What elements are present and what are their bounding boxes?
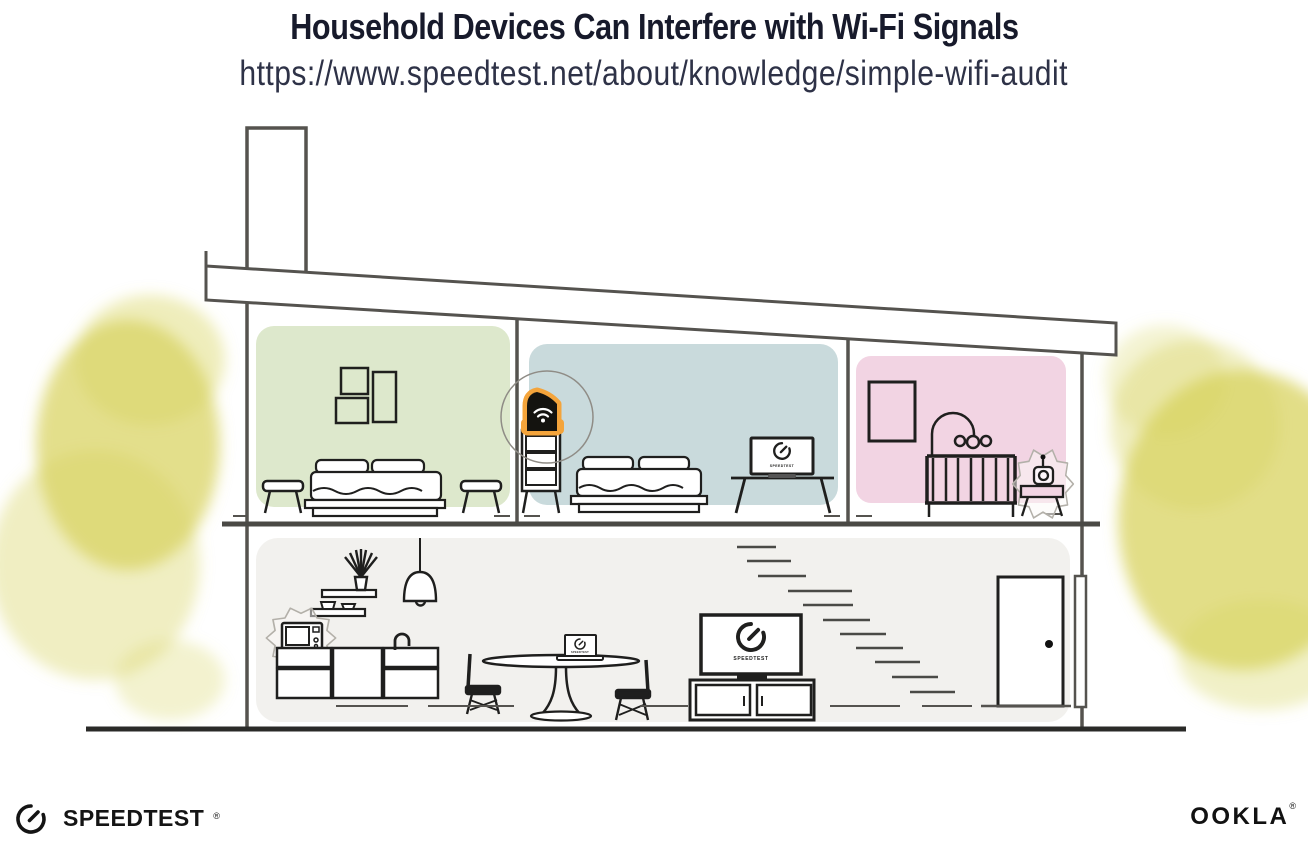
tv-area: SPEEDTEST	[690, 615, 814, 720]
doorknob	[1045, 640, 1053, 648]
tv-label: SPEEDTEST	[733, 656, 768, 662]
dining-laptop-label: SPEEDTEST	[571, 650, 589, 654]
bed	[571, 457, 707, 512]
ookla-wordmark: OOKLA	[1190, 803, 1289, 830]
microwave-icon	[282, 623, 322, 650]
infographic-page: Household Devices Can Interfere with Wi-…	[0, 0, 1308, 861]
speedtest-wordmark: SPEEDTEST	[63, 805, 204, 832]
house-illustration: SPEEDTEST	[0, 0, 1308, 861]
foliage-right	[1105, 325, 1308, 710]
downspout	[1075, 576, 1086, 707]
speedtest-logo: SPEEDTEST®	[14, 801, 220, 835]
bed	[305, 460, 445, 516]
foliage-left	[0, 295, 225, 720]
tv-stand	[737, 675, 767, 679]
bedroom-laptop-label: SPEEDTEST	[770, 464, 795, 468]
speedtest-gauge-icon	[14, 801, 54, 835]
kitchen-cabinets	[277, 648, 438, 698]
registered-mark: ®	[213, 811, 220, 821]
registered-mark: ®	[1289, 801, 1296, 811]
ookla-logo: OOKLA®	[1190, 803, 1296, 831]
media-console	[690, 680, 814, 720]
